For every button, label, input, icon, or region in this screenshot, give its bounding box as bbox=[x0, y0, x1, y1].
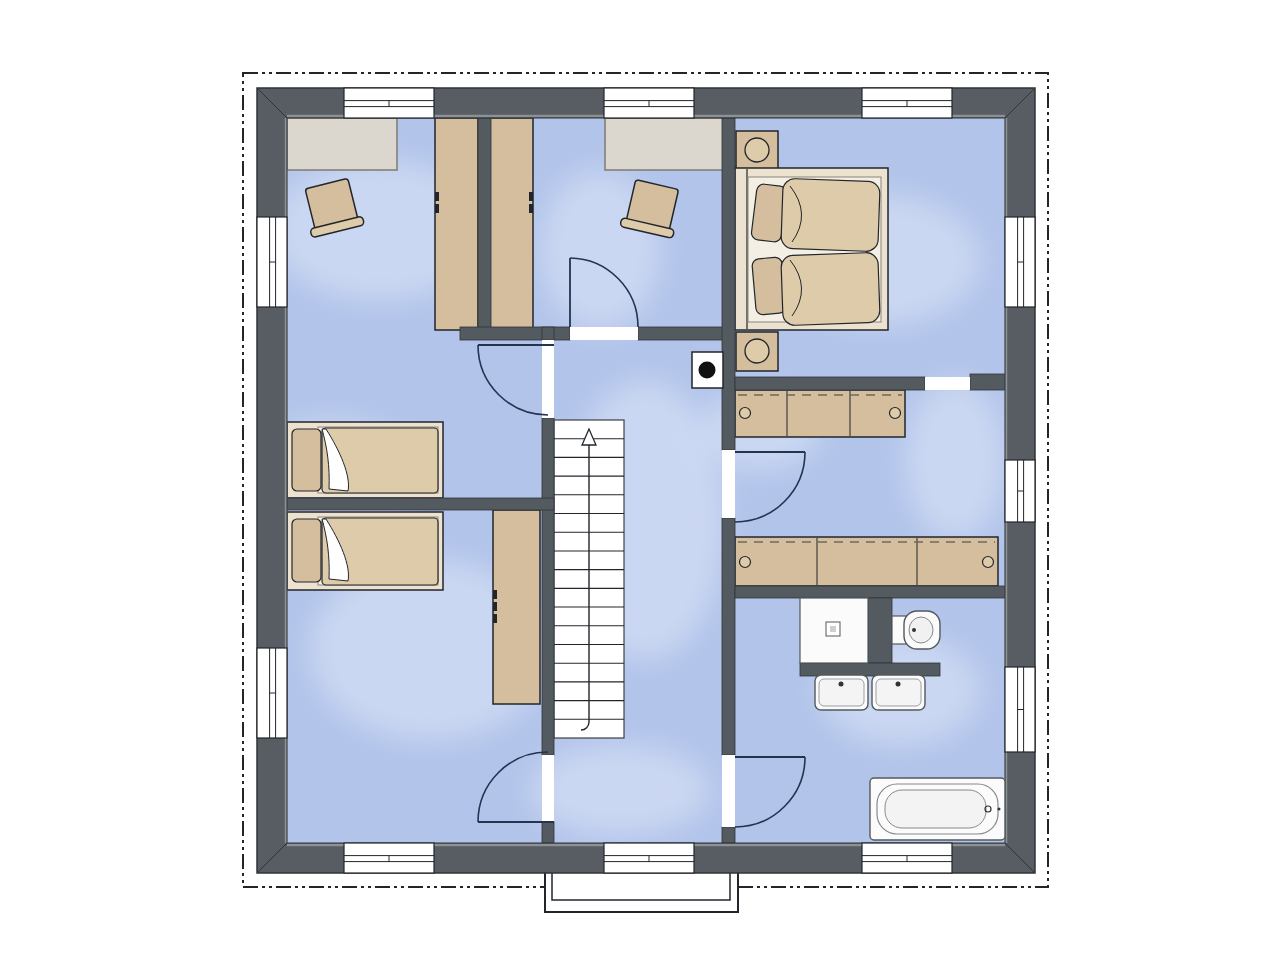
sink-faucet bbox=[896, 682, 901, 687]
duvet bbox=[781, 178, 880, 251]
window bbox=[1005, 460, 1035, 522]
wardrobe bbox=[490, 118, 533, 330]
wardrobe-handle bbox=[435, 192, 439, 201]
shower-wall bbox=[868, 598, 892, 663]
partition-wall bbox=[542, 822, 554, 843]
partition-wall bbox=[722, 827, 735, 843]
wardrobe bbox=[493, 510, 540, 704]
window bbox=[344, 88, 434, 118]
window bbox=[1005, 667, 1035, 752]
toilet-flush-dot bbox=[912, 628, 916, 632]
door-opening bbox=[925, 377, 970, 390]
door-opening bbox=[570, 327, 638, 340]
door-opening bbox=[542, 340, 554, 418]
partition-wall bbox=[722, 118, 735, 450]
sink-faucet bbox=[839, 682, 844, 687]
wardrobe-handle bbox=[435, 204, 439, 213]
partition-wall bbox=[478, 118, 491, 333]
floor-texture bbox=[530, 745, 710, 835]
window bbox=[257, 648, 287, 738]
wardrobe bbox=[435, 118, 478, 330]
sliding-wardrobe bbox=[735, 390, 905, 437]
door-opening bbox=[722, 450, 735, 518]
knob bbox=[740, 408, 751, 419]
duvet bbox=[781, 252, 880, 325]
partition-wall bbox=[542, 418, 554, 755]
partition-wall bbox=[970, 374, 1005, 390]
window bbox=[862, 88, 952, 118]
pillow bbox=[292, 429, 321, 491]
partition-wall bbox=[735, 377, 925, 390]
partition-wall bbox=[542, 327, 554, 340]
bathtub-basin bbox=[885, 790, 986, 828]
lamp bbox=[745, 138, 769, 162]
shower-drain-inner bbox=[830, 626, 836, 632]
chimney bbox=[692, 352, 723, 388]
knob bbox=[740, 557, 751, 568]
floor-texture bbox=[905, 380, 1005, 540]
desk bbox=[287, 118, 397, 170]
lamp bbox=[745, 339, 769, 363]
vanity-wall bbox=[800, 663, 940, 676]
knob bbox=[890, 408, 901, 419]
floor-plan-canvas bbox=[0, 0, 1280, 960]
window bbox=[862, 843, 952, 873]
wardrobe-handle bbox=[529, 192, 533, 201]
door-opening bbox=[722, 755, 735, 827]
door-opening bbox=[542, 755, 554, 822]
wardrobe-handle bbox=[493, 614, 497, 623]
wardrobe-handle bbox=[493, 590, 497, 599]
sliding-wardrobe bbox=[735, 537, 998, 586]
window bbox=[1005, 217, 1035, 307]
desk bbox=[605, 118, 723, 170]
staircase bbox=[554, 420, 624, 738]
window bbox=[257, 217, 287, 307]
window bbox=[604, 843, 694, 873]
bathtub-drain bbox=[998, 808, 1001, 811]
partition-wall bbox=[722, 518, 735, 755]
chimney-flue bbox=[699, 362, 716, 379]
pillow bbox=[292, 519, 321, 582]
knob bbox=[983, 557, 994, 568]
partition-wall bbox=[735, 586, 1005, 598]
partition-wall bbox=[287, 498, 554, 510]
wardrobe-handle bbox=[529, 204, 533, 213]
wardrobe-handle bbox=[493, 602, 497, 611]
window bbox=[344, 843, 434, 873]
window bbox=[604, 88, 694, 118]
entrance-canopy bbox=[545, 869, 738, 912]
partition-wall bbox=[638, 327, 728, 340]
floor-plan-page bbox=[0, 0, 1280, 960]
